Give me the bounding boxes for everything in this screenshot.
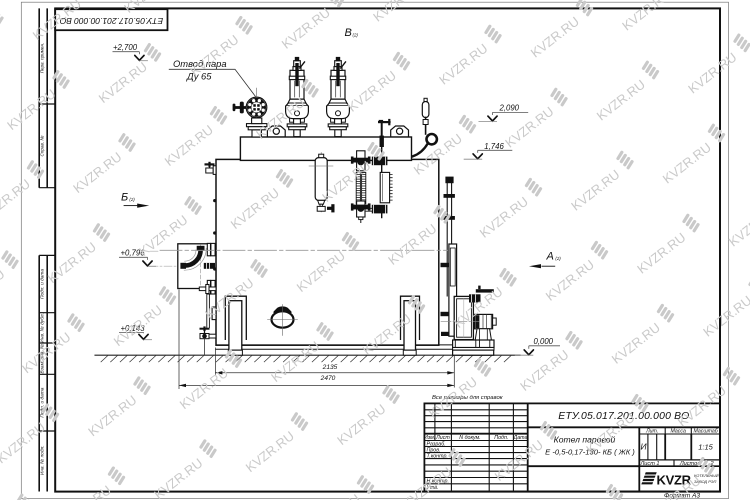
svg-text:Инв. № дубл.: Инв. № дубл. [40,313,46,343]
svg-text:(2): (2) [353,33,359,38]
svg-text:Изм.: Изм. [424,435,435,441]
svg-text:И: И [640,442,647,452]
svg-text:Подп. и дата: Подп. и дата [40,387,46,417]
svg-text:Б: Б [121,192,128,204]
svg-text:Лит.: Лит. [645,429,658,435]
svg-text:2470: 2470 [320,375,336,382]
svg-text:Лист: Лист [435,435,450,441]
svg-text:1,746: 1,746 [484,142,504,151]
svg-text:А: А [546,250,554,262]
svg-text:Т.контр.: Т.контр. [427,454,448,460]
svg-text:Лист 1: Лист 1 [639,461,659,467]
svg-text:Подп.: Подп. [494,435,508,441]
svg-text:+2,700: +2,700 [113,43,138,52]
svg-text:Пров.: Пров. [427,447,441,453]
svg-text:2135: 2135 [322,364,338,371]
svg-text:(2): (2) [555,256,561,261]
svg-text:Листов: Листов [679,461,700,467]
svg-text:N докум.: N докум. [459,435,480,441]
svg-text:1:15: 1:15 [698,443,713,452]
svg-text:Справ. №: Справ. № [40,136,45,157]
svg-text:2,090: 2,090 [499,103,520,112]
svg-text:В: В [345,27,352,39]
svg-text:Масштаб: Масштаб [693,429,718,435]
svg-text:Инв. № подл.: Инв. № подл. [40,445,46,475]
svg-text:ЕТУ.05.017.201.00.000 ВО: ЕТУ.05.017.201.00.000 ВО [59,16,163,26]
svg-text:Разраб.: Разраб. [427,441,446,447]
svg-text:КОТЕЛЬНЫЙ: КОТЕЛЬНЫЙ [694,473,719,478]
svg-text:Дата: Дата [513,435,528,441]
svg-text:0,000: 0,000 [534,337,554,346]
svg-text:(2): (2) [129,197,135,202]
svg-text:Перв. примен.: Перв. примен. [40,43,45,74]
